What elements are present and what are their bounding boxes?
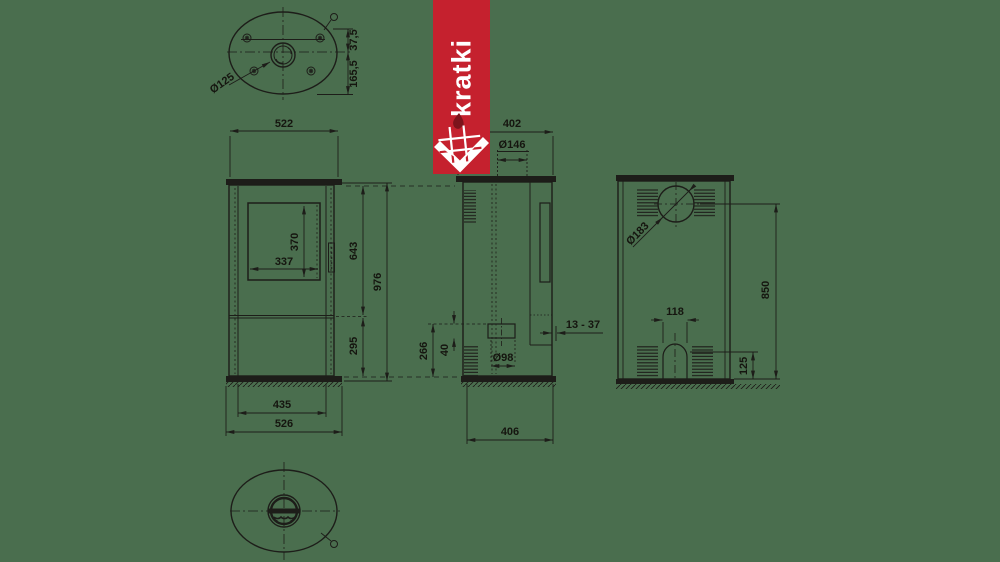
back-top-plate — [616, 175, 734, 181]
back-upper-right-vent — [694, 188, 715, 218]
side-base-plate — [461, 376, 556, 382]
back-base-plate — [616, 379, 734, 384]
top-bolt-holes — [243, 34, 324, 75]
kratki-logo-text: kratki — [446, 39, 477, 117]
dim-side-inlet-diameter: Ø98 — [493, 352, 514, 364]
dim-back-flue-height: 850 — [760, 281, 772, 299]
front-base-plate — [226, 376, 342, 382]
dim-side-inlet-height: 266 — [418, 342, 430, 360]
side-upper-vent — [464, 190, 476, 224]
dim-side-top-depth: 402 — [503, 118, 521, 130]
dim-front-glass-height: 370 — [289, 233, 301, 251]
dim-back-arch-height: 125 — [738, 357, 750, 375]
kratki-logo-mark — [434, 109, 489, 173]
dim-front-base-height: 295 — [348, 337, 360, 355]
side-top-plate — [456, 176, 556, 182]
dim-side-flue-collar: Ø146 — [499, 139, 526, 151]
flame-icon — [453, 113, 464, 129]
back-lower-right-vent — [692, 346, 713, 377]
front-view: 522 370 337 643 295 976 — [226, 118, 455, 436]
grate-grid-icon — [437, 124, 483, 164]
bottom-view — [230, 462, 340, 560]
dim-front-top-width: 522 — [275, 118, 293, 130]
kratki-logo-banner: kratki — [433, 0, 490, 174]
dim-side-base-depth: 406 — [501, 426, 519, 438]
top-sensor-boss — [331, 14, 338, 21]
side-rear-shield — [540, 203, 550, 282]
front-top-plate — [226, 179, 342, 185]
dim-front-glass-width: 337 — [275, 256, 293, 268]
bottom-sensor-boss — [331, 541, 338, 548]
dim-front-body-height: 643 — [348, 242, 360, 260]
dim-front-base-inner-width: 435 — [273, 399, 291, 411]
dim-side-inlet-size: 40 — [439, 344, 451, 356]
back-view: Ø183 850 118 125 — [616, 175, 780, 389]
dim-top-offset-top: 37,5 — [348, 29, 360, 50]
dim-top-flue-diameter: Ø125 — [208, 71, 237, 96]
dim-front-base-width: 526 — [275, 418, 293, 430]
back-upper-left-vent — [637, 188, 658, 218]
v-checkmark-icon — [437, 140, 486, 167]
back-lower-left-vent — [637, 346, 658, 377]
side-lower-vent — [464, 345, 478, 376]
dim-back-arch-width: 118 — [666, 306, 684, 318]
dim-top-offset-bottom: 165,5 — [348, 60, 360, 88]
dim-front-total-height: 976 — [372, 273, 384, 291]
stove-dimension-drawing: Ø125 37,5 165,5 522 370 337 — [0, 0, 1000, 562]
grate-grid-cutout — [437, 124, 483, 164]
dim-back-flue-diameter: Ø183 — [624, 220, 651, 248]
dim-side-rear-gap: 13 - 37 — [566, 319, 600, 331]
top-view: Ø125 37,5 165,5 — [208, 7, 360, 100]
technical-drawing-page: Ø125 37,5 165,5 522 370 337 — [0, 0, 1000, 562]
front-door-glass — [248, 203, 320, 280]
